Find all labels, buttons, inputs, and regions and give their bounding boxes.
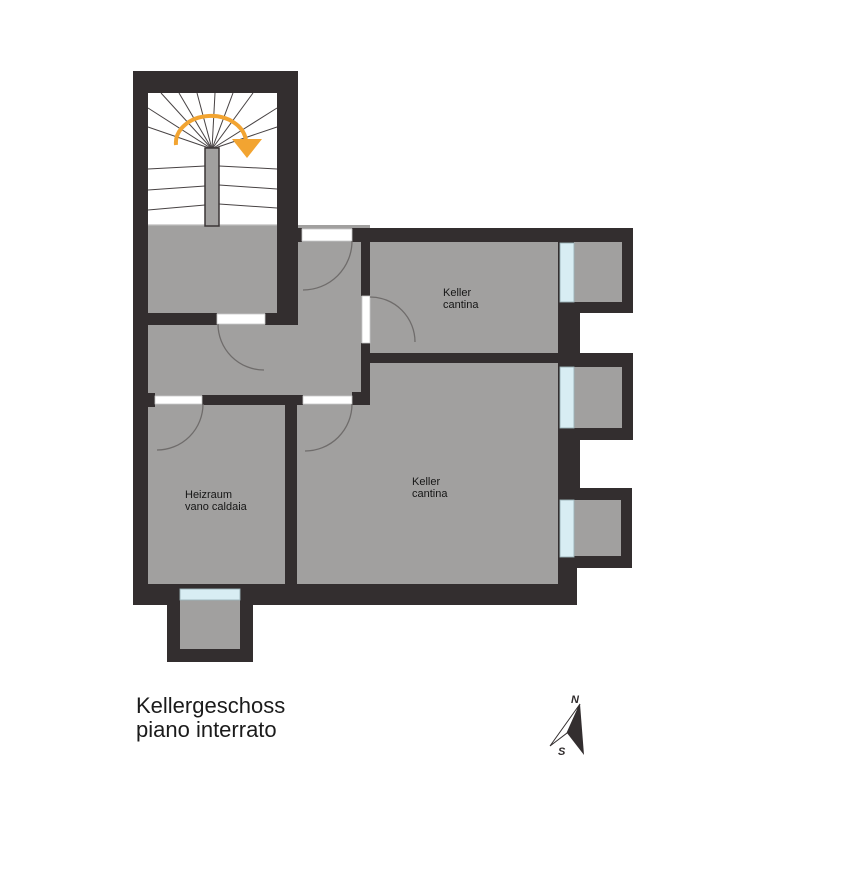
- room-keller-main-label: cantina: [412, 488, 448, 500]
- wall-west: [133, 71, 148, 605]
- wall-segment: [265, 313, 298, 325]
- floorplan-page: Keller cantina Keller cantina Heizraum v…: [0, 0, 852, 878]
- door-heizraum: [155, 396, 202, 404]
- room-heizraum-label: Heizraum: [185, 489, 232, 501]
- door-keller-top: [362, 296, 370, 343]
- light-well-1-wall: [563, 302, 633, 313]
- door-stair: [217, 314, 265, 324]
- light-well-2-wall: [558, 353, 633, 367]
- plan-title: Kellergeschoss piano interrato: [136, 693, 285, 742]
- window-east-3: [560, 500, 574, 557]
- room-keller-top-label: Keller: [443, 287, 471, 299]
- wall-segment: [133, 393, 155, 407]
- wall-north: [352, 228, 633, 242]
- compass-n-label: N: [571, 694, 580, 706]
- wall-stair-north: [133, 71, 298, 93]
- light-well-south-wall: [240, 605, 253, 662]
- plan-title-line1: Kellergeschoss: [136, 693, 285, 718]
- door-keller-main: [303, 396, 352, 404]
- wall-segment: [361, 242, 370, 296]
- wall-segment: [352, 392, 370, 405]
- north-arrow-icon: N S: [550, 694, 584, 758]
- light-well-2-wall: [622, 353, 633, 440]
- wall-stair-east: [277, 93, 298, 325]
- light-well-1-wall: [622, 229, 633, 313]
- wall-keller-divider: [361, 353, 563, 363]
- light-well-3-wall: [563, 556, 632, 568]
- floor-plan: Keller cantina Keller cantina Heizraum v…: [0, 0, 852, 878]
- light-well-south-floor: [180, 595, 240, 649]
- door-entrance: [302, 229, 352, 241]
- wall-south: [240, 584, 574, 605]
- light-well-3-wall: [558, 488, 632, 500]
- wall-heizraum-east: [285, 405, 297, 585]
- window-east-1: [560, 243, 574, 302]
- window-south: [180, 589, 240, 600]
- light-well-2-wall: [563, 428, 633, 440]
- room-keller-main-label: Keller: [412, 476, 440, 488]
- wall-segment: [180, 584, 240, 589]
- wall-corridor-south: [202, 395, 303, 405]
- room-keller-top-label: cantina: [443, 299, 479, 311]
- wall-segment: [133, 313, 217, 325]
- room-heizraum-label: vano caldaia: [185, 501, 248, 513]
- wall-south: [133, 584, 180, 605]
- stairwell: [148, 93, 277, 226]
- stair-spine-wall: [205, 148, 219, 226]
- wall-segment: [297, 228, 302, 242]
- plan-title-line2: piano interrato: [136, 717, 277, 742]
- window-east-2: [560, 367, 574, 428]
- compass-s-label: S: [558, 746, 566, 758]
